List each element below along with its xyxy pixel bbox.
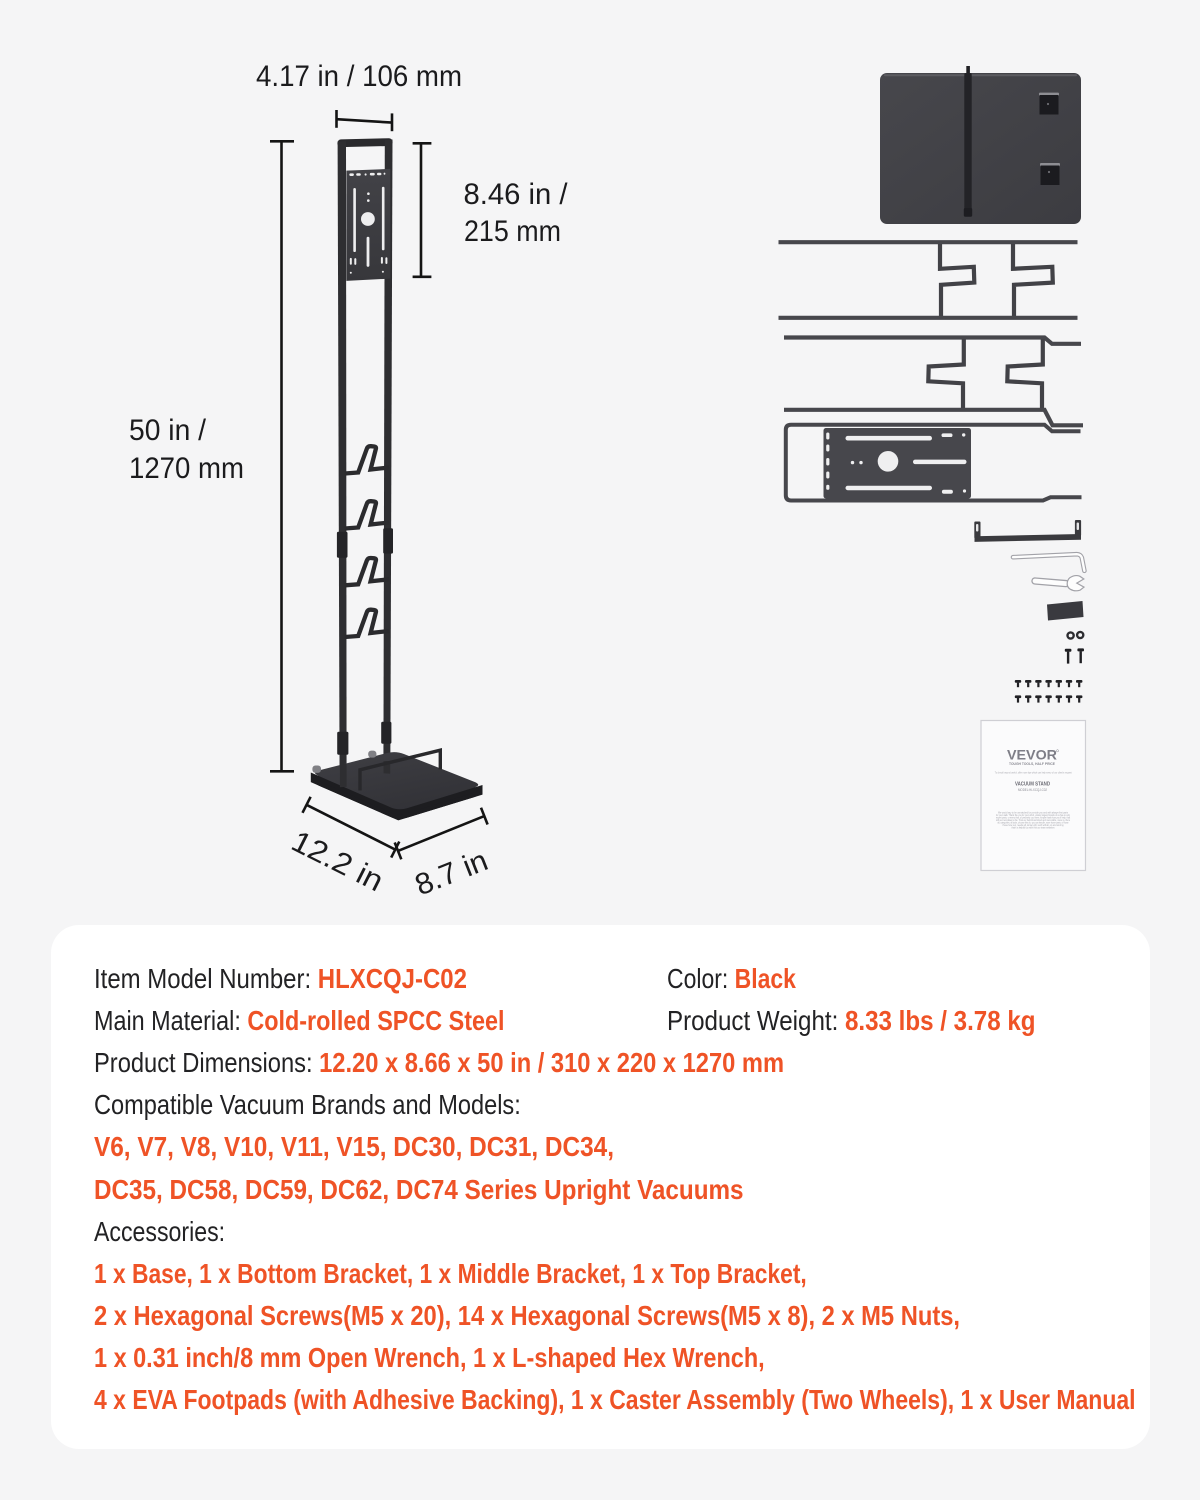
svg-text:VACUUM STAND: VACUUM STAND xyxy=(1015,782,1050,788)
svg-text:VEVOR: VEVOR xyxy=(1007,747,1057,763)
svg-text:1270 mm: 1270 mm xyxy=(129,452,244,485)
svg-text:4.17 in / 106 mm: 4.17 in / 106 mm xyxy=(256,60,462,93)
svg-text:8.7 in: 8.7 in xyxy=(411,844,493,902)
svg-text:To check beyond useful, offer: To check beyond useful, offer more tips … xyxy=(995,771,1072,775)
svg-text:50 in /: 50 in / xyxy=(129,414,207,447)
svg-text:MODEL:HLXCQJ-C02: MODEL:HLXCQJ-C02 xyxy=(1018,788,1047,792)
svg-text:12.2 in: 12.2 in xyxy=(286,825,388,899)
svg-text:215 mm: 215 mm xyxy=(464,215,561,248)
svg-text:TOUGH TOOLS, HALF PRICE: TOUGH TOOLS, HALF PRICE xyxy=(1009,762,1056,766)
svg-text:that's a helpful too with this: that's a helpful too with this our team … xyxy=(1012,825,1055,829)
svg-text:8.46 in /: 8.46 in / xyxy=(464,178,569,211)
